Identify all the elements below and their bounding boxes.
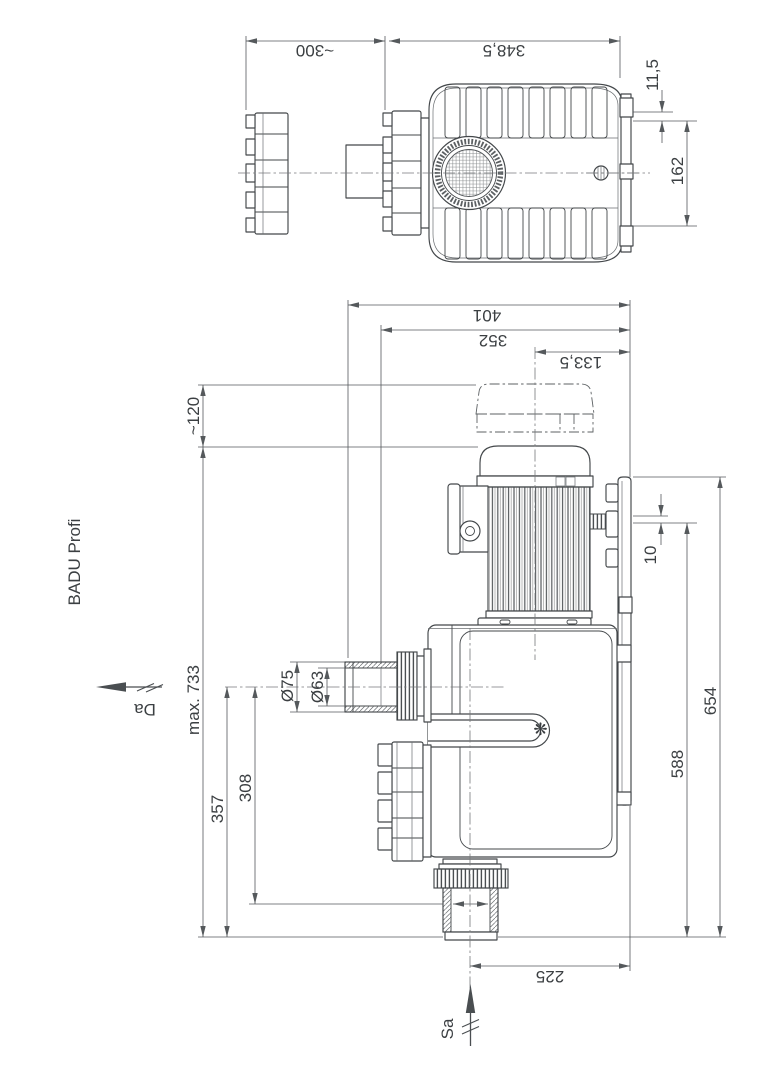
- dim-center-to-plate-label: 133,5: [560, 353, 603, 372]
- badu-logo-icon: ❋: [533, 720, 547, 739]
- dim-fan-clearance-label: ~120: [184, 397, 203, 435]
- top-discharge-stub: [346, 145, 383, 198]
- dim-total-height-label: 654: [701, 687, 720, 715]
- technical-drawing: ❋: [0, 0, 764, 1080]
- dim-outer-dia-label: Ø75: [278, 670, 297, 702]
- suction-label: Sa: [438, 1018, 457, 1039]
- dim-discharge-height-label: 357: [208, 795, 227, 823]
- cable-gland-icon: [460, 521, 480, 541]
- loose-union-nut: [246, 113, 288, 234]
- drawing-title: BADU Profi: [65, 519, 84, 606]
- flow-arrows: Da Sa: [96, 682, 479, 1046]
- dim-max-height-label: max. 733: [184, 665, 203, 735]
- terminal-box: [448, 484, 488, 554]
- suction-union-nut: [434, 869, 508, 888]
- dim-drain-height-label: 588: [668, 750, 687, 778]
- dim-suction-to-plate-label: 225: [536, 967, 564, 986]
- dim-slot-width-label: 11,5: [643, 59, 662, 91]
- pump-housing: ❋: [428, 625, 617, 857]
- discharge-label: Da: [134, 700, 156, 719]
- dim-socket-height-label: 308: [236, 774, 255, 802]
- strainer-lid: [378, 742, 431, 861]
- dim-width-to-union-label: 352: [479, 331, 507, 350]
- drain-plug: [590, 514, 606, 529]
- front-view: ❋: [345, 384, 632, 940]
- suction-port: [434, 859, 508, 940]
- dim-inner-dia-label: Ø63: [308, 671, 327, 703]
- dim-overall-width-label: 401: [473, 306, 501, 325]
- dim-plate-offset-label: 10: [641, 546, 660, 565]
- discharge-port: [345, 649, 431, 722]
- dim-clearance-label: ~300: [296, 41, 334, 60]
- da-flow-arrow: Da: [96, 682, 163, 719]
- dim-slot-spacing-label: 162: [668, 157, 687, 185]
- discharge-union-nut: [397, 652, 417, 720]
- dim-length-label: 348,5: [483, 41, 526, 60]
- pump-dimension-drawing-page: ❋: [0, 0, 764, 1080]
- sa-flow-arrow: Sa: [438, 984, 479, 1046]
